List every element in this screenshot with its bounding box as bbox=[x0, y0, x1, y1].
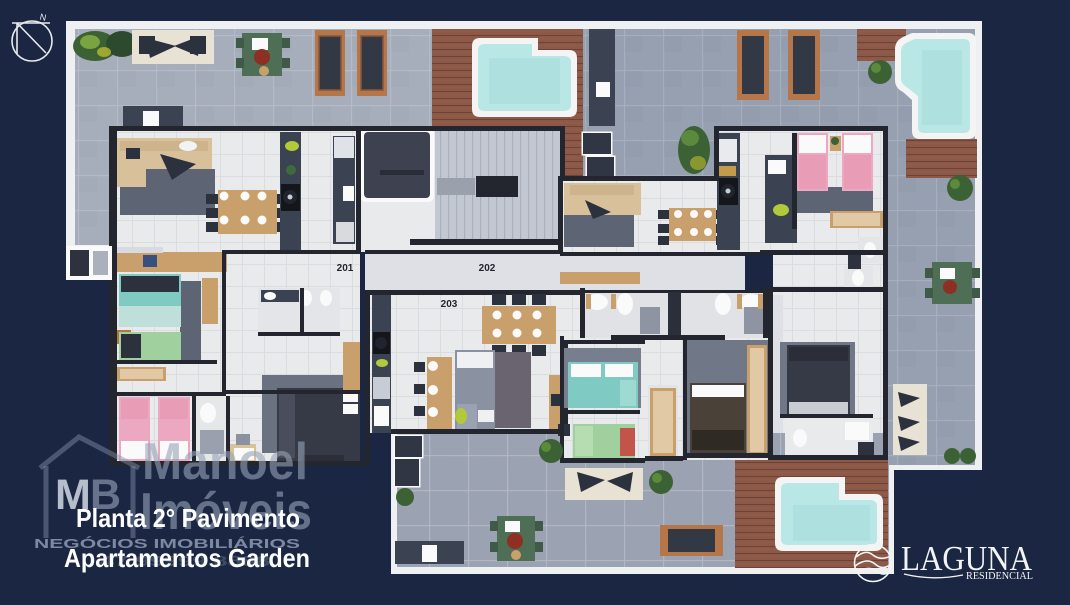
svg-text:203: 203 bbox=[441, 299, 458, 310]
svg-text:RESIDENCIAL: RESIDENCIAL bbox=[966, 571, 1033, 582]
svg-text:202: 202 bbox=[479, 263, 496, 274]
svg-text:201: 201 bbox=[337, 263, 354, 274]
svg-text:Planta 2° Pavimento: Planta 2° Pavimento bbox=[76, 503, 300, 533]
svg-text:Apartamentos Garden: Apartamentos Garden bbox=[64, 543, 310, 573]
